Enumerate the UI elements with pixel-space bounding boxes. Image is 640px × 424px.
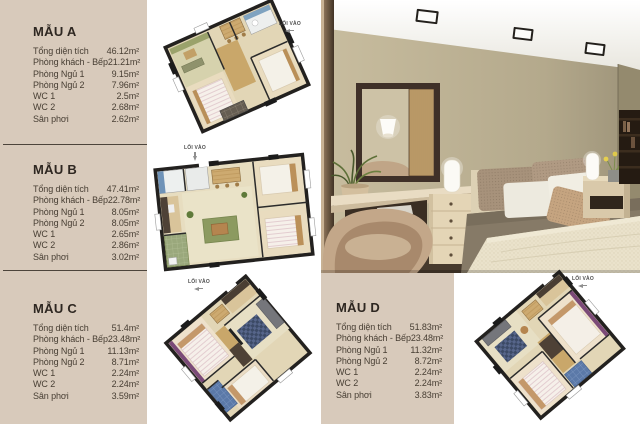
spec-value: 22.78m² (108, 195, 140, 206)
arrow-left-icon (285, 29, 294, 33)
spec-label: Tổng diện tích (33, 184, 89, 195)
spec-row: Phòng khách - Bếp23.48m² (33, 334, 139, 345)
spec-value: 23.48m² (411, 333, 443, 344)
spec-value: 9.15m² (112, 69, 139, 80)
spec-value: 8.05m² (112, 207, 139, 218)
spec-value: 2.62m² (112, 114, 139, 125)
mirror (356, 83, 440, 183)
entrance-marker-b: LỐI VÀO (184, 145, 206, 161)
wall-shelves (619, 110, 640, 184)
panel-title: MẪU D (336, 300, 442, 315)
spec-row: Phòng khách - Bếp22.78m² (33, 195, 139, 206)
spec-row: WC 22.68m² (33, 102, 139, 113)
spec-label: Tổng diện tích (33, 323, 89, 334)
spec-label: Sân phơi (336, 390, 372, 401)
entrance-label: LỐI VÀO (188, 279, 210, 285)
spec-row: WC 12.65m² (33, 229, 139, 240)
spec-label: WC 2 (336, 378, 358, 389)
entrance-label: LỐI VÀO (184, 145, 206, 151)
spec-row: WC 12.24m² (33, 368, 139, 379)
spec-row: Phòng Ngủ 28.05m² (33, 218, 139, 229)
kitchen (160, 196, 182, 234)
spec-row: Phòng Ngủ 18.05m² (33, 207, 139, 218)
spec-label: Sân phơi (33, 252, 69, 263)
spec-label: Phòng khách - Bếp (33, 334, 108, 345)
spec-panel-mau-d: MẪU D Tổng diện tích51.83m² Phòng khách … (336, 300, 442, 401)
spec-value: 2.5m² (116, 91, 139, 102)
spec-value: 21.21m² (108, 57, 140, 68)
entrance-marker-d: LỐI VÀO (572, 276, 594, 288)
spec-panel-mau-a: MẪU A Tổng diện tích46.12m² Phòng khách … (33, 24, 139, 125)
spec-value: 8.05m² (112, 218, 139, 229)
arrow-left-icon (194, 287, 203, 291)
spec-value: 2.24m² (112, 379, 139, 390)
spec-label: Phòng Ngủ 2 (33, 218, 84, 229)
spec-value: 3.83m² (415, 390, 442, 401)
spec-value: 23.48m² (108, 334, 140, 345)
spec-row: Phòng Ngủ 28.71m² (33, 357, 139, 368)
spec-value: 51.4m² (112, 323, 139, 334)
spec-panel-mau-c: MẪU C Tổng diện tích51.4m² Phòng khách -… (33, 301, 139, 402)
spec-label: WC 2 (33, 102, 55, 113)
entrance-marker-c: LỐI VÀO (188, 279, 210, 291)
spec-label: Phòng Ngủ 1 (33, 207, 84, 218)
spec-label: WC 1 (33, 368, 55, 379)
spec-value: 2.24m² (415, 378, 442, 389)
living-room (182, 186, 259, 263)
spec-label: Tổng diện tích (33, 46, 89, 57)
section-divider (3, 270, 147, 271)
bedroom-2 (258, 206, 311, 257)
bathroom-2 (185, 167, 209, 191)
spec-value: 47.41m² (107, 184, 139, 195)
spec-row: WC 12.24m² (336, 367, 442, 378)
spec-row: Tổng diện tích51.83m² (336, 322, 442, 333)
panel-title: MẪU B (33, 162, 139, 177)
spec-label: Phòng Ngủ 2 (336, 356, 387, 367)
spec-row: Sân phơi2.62m² (33, 114, 139, 125)
spec-label: Sân phơi (33, 391, 69, 402)
entrance-marker-a: LỐI VÀO (279, 21, 301, 33)
brochure-page: MẪU A Tổng diện tích46.12m² Phòng khách … (0, 0, 640, 424)
spec-label: Phòng Ngủ 2 (33, 80, 84, 91)
spec-label: Phòng Ngủ 1 (33, 346, 84, 357)
floorplan-mau-c (152, 274, 324, 424)
wall-stub (209, 262, 219, 268)
spec-label: Phòng khách - Bếp (336, 333, 411, 344)
spec-value: 2.24m² (112, 368, 139, 379)
spec-panel-mau-b: MẪU B Tổng diện tích47.41m² Phòng khách … (33, 162, 139, 263)
spec-row: Phòng Ngủ 19.15m² (33, 69, 139, 80)
spec-row: WC 22.24m² (33, 379, 139, 390)
section-divider (3, 144, 147, 145)
spec-label: WC 1 (33, 91, 55, 102)
spec-row: Tổng diện tích51.4m² (33, 323, 139, 334)
spec-row: Phòng khách - Bếp21.21m² (33, 57, 139, 68)
spec-value: 11.32m² (410, 345, 442, 356)
spec-value: 8.72m² (415, 356, 442, 367)
spec-value: 2.68m² (112, 102, 139, 113)
spec-value: 2.86m² (112, 240, 139, 251)
wall-stub (268, 154, 278, 160)
spec-row: Sân phơi3.59m² (33, 391, 139, 402)
bathroom-1 (157, 169, 185, 194)
spec-label: Phòng Ngủ 2 (33, 357, 84, 368)
spec-label: WC 2 (33, 379, 55, 390)
dining-table (211, 167, 240, 184)
wall-sconce (376, 115, 400, 139)
arrow-left-icon (578, 284, 587, 288)
bedroom-photo (321, 0, 640, 273)
panel-title: MẪU C (33, 301, 139, 316)
spec-label: Phòng Ngủ 1 (336, 345, 387, 356)
spec-row: Sân phơi3.83m² (336, 390, 442, 401)
spec-label: Phòng Ngủ 1 (33, 69, 84, 80)
spec-label: WC 1 (336, 367, 358, 378)
spec-row: Phòng Ngủ 28.72m² (336, 356, 442, 367)
spec-label: Sân phơi (33, 114, 69, 125)
spec-label: Tổng diện tích (336, 322, 392, 333)
arrow-down-icon (193, 152, 197, 161)
spec-row: Phòng Ngủ 111.32m² (336, 345, 442, 356)
floorplan-mau-b (148, 150, 320, 278)
floorplan-mau-d (460, 268, 640, 424)
spec-value: 3.59m² (112, 391, 139, 402)
spec-row: Phòng Ngủ 27.96m² (33, 80, 139, 91)
spec-value: 51.83m² (410, 322, 442, 333)
washing-machine (168, 257, 177, 265)
desk-lamp (441, 157, 463, 192)
panel-title: MẪU A (33, 24, 139, 39)
spec-label: Phòng khách - Bếp (33, 57, 108, 68)
bedroom-1 (253, 157, 305, 206)
wall-stub (209, 160, 219, 166)
spec-value: 7.96m² (112, 80, 139, 91)
spec-row: WC 22.24m² (336, 378, 442, 389)
entrance-label: LỐI VÀO (572, 276, 594, 282)
spec-value: 3.02m² (112, 252, 139, 263)
spec-row: Tổng diện tích47.41m² (33, 184, 139, 195)
spec-value: 46.12m² (107, 46, 139, 57)
spec-label: WC 2 (33, 240, 55, 251)
spec-value: 8.71m² (112, 357, 139, 368)
spec-label: WC 1 (33, 229, 55, 240)
spec-label: Phòng khách - Bếp (33, 195, 108, 206)
laundry-room (164, 233, 189, 267)
spec-row: WC 12.5m² (33, 91, 139, 102)
spec-row: Phòng Ngủ 111.13m² (33, 346, 139, 357)
bedroom-photo-art (321, 0, 640, 273)
spec-row: Tổng diện tích46.12m² (33, 46, 139, 57)
spec-value: 2.65m² (112, 229, 139, 240)
spec-row: Phòng khách - Bếp23.48m² (336, 333, 442, 344)
coffee-table (211, 223, 228, 236)
spec-row: WC 22.86m² (33, 240, 139, 251)
spec-value: 11.13m² (107, 346, 139, 357)
entrance-label: LỐI VÀO (279, 21, 301, 27)
spec-row: Sân phơi3.02m² (33, 252, 139, 263)
spec-value: 2.24m² (415, 367, 442, 378)
